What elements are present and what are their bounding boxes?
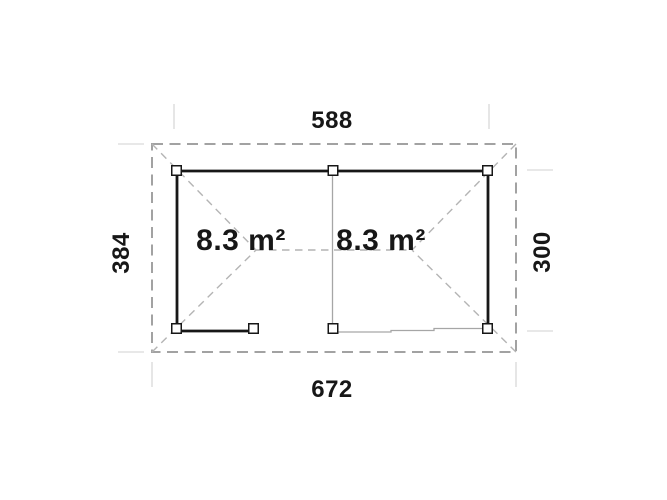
room-area-right: 8.3 m² [336,224,426,257]
post-bottom-center [328,324,338,334]
right-room-bottom-wall [333,329,484,333]
post-bottom-left [172,324,182,334]
dimension-width-top: 588 [311,107,353,134]
floor-plan-drawing: 588 672 384 300 8.3 m² 8.3 m² [0,0,667,500]
dimension-height-right: 300 [529,231,556,273]
post-top-center [328,166,338,176]
room-area-left: 8.3 m² [196,224,286,257]
hip-line-bottom-right [412,250,516,352]
dimension-height-left: 384 [108,232,135,274]
hip-line-top-right [412,144,516,250]
post-bottom-door [249,324,259,334]
hip-line-bottom-left [152,250,256,352]
floor-plan-canvas: 588 672 384 300 8.3 m² 8.3 m² [0,0,667,500]
dimension-width-bottom: 672 [311,376,353,403]
post-top-left [172,166,182,176]
post-bottom-right [483,324,493,334]
post-top-right [483,166,493,176]
